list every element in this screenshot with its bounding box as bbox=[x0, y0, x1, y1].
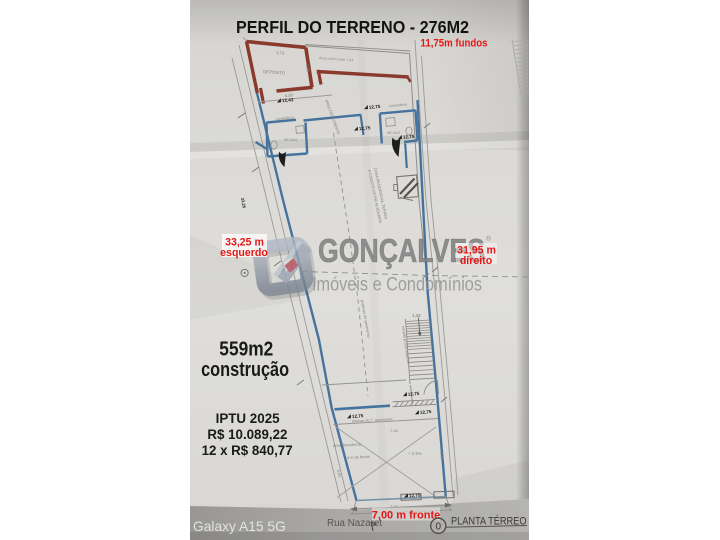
svg-text:12 x R$ 840,77: 12 x R$ 840,77 bbox=[202, 443, 293, 459]
svg-text:construção: construção bbox=[201, 359, 289, 381]
svg-text:direito: direito bbox=[460, 255, 493, 267]
svg-text:12,75: 12,75 bbox=[359, 125, 371, 131]
svg-text:®: ® bbox=[486, 235, 492, 243]
svg-text:12,75: 12,75 bbox=[408, 391, 420, 397]
svg-text:12,75: 12,75 bbox=[403, 134, 415, 140]
svg-text:Galaxy A15 5G: Galaxy A15 5G bbox=[193, 519, 286, 534]
svg-text:7,00 m fronte: 7,00 m fronte bbox=[372, 510, 440, 522]
svg-text:WC AUX: WC AUX bbox=[284, 138, 298, 142]
svg-text:11,75m fundos: 11,75m fundos bbox=[421, 38, 488, 50]
svg-text:12,75: 12,75 bbox=[420, 409, 432, 415]
svg-text:2,98: 2,98 bbox=[305, 64, 311, 73]
svg-text:1,43: 1,43 bbox=[412, 313, 421, 318]
svg-text:12,75: 12,75 bbox=[409, 493, 421, 499]
svg-text:12,75: 12,75 bbox=[352, 413, 364, 419]
svg-text:12,75: 12,75 bbox=[369, 104, 381, 110]
svg-text:+ 2.5%: + 2.5% bbox=[408, 451, 422, 456]
svg-text:559m2: 559m2 bbox=[219, 339, 273, 361]
svg-text:3,73: 3,73 bbox=[276, 50, 285, 56]
svg-text:WC AUX: WC AUX bbox=[387, 131, 401, 135]
svg-text:6,95: 6,95 bbox=[439, 452, 445, 461]
svg-text:R$ 10.089,22: R$ 10.089,22 bbox=[207, 427, 287, 443]
svg-text:PERFIL DO TERRENO - 276M2: PERFIL DO TERRENO - 276M2 bbox=[236, 17, 469, 37]
svg-text:esquerdo: esquerdo bbox=[220, 247, 268, 259]
svg-text:Imóveis e Condomínios: Imóveis e Condomínios bbox=[312, 275, 482, 296]
svg-text:12,43: 12,43 bbox=[282, 97, 294, 103]
svg-text:0: 0 bbox=[436, 522, 442, 533]
svg-text:7,18: 7,18 bbox=[390, 428, 399, 433]
svg-text:IPTU 2025: IPTU 2025 bbox=[216, 411, 280, 427]
